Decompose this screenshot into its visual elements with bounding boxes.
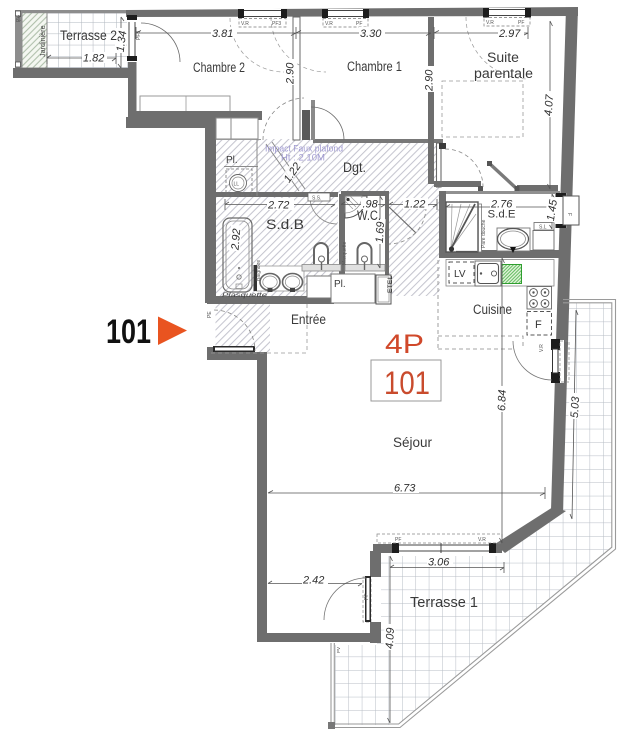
svg-text:1.69: 1.69 xyxy=(374,221,387,243)
svg-text:parentale: parentale xyxy=(474,66,533,81)
svg-text:1.82: 1.82 xyxy=(83,53,104,65)
svg-text:Masquette: Masquette xyxy=(342,241,348,265)
svg-text:2.90: 2.90 xyxy=(424,69,436,92)
svg-text:PV: PV xyxy=(16,15,22,22)
svg-text:S.d.E: S.d.E xyxy=(488,209,516,221)
svg-text:3.30: 3.30 xyxy=(360,28,382,40)
svg-text:LL: LL xyxy=(234,182,240,188)
svg-text:2.72: 2.72 xyxy=(267,200,289,212)
svg-text:4.07: 4.07 xyxy=(543,93,557,116)
svg-text:Baignoire: Baignoire xyxy=(256,260,262,281)
svg-text:V.R: V.R xyxy=(325,21,333,27)
svg-text:Cuisine: Cuisine xyxy=(473,302,512,317)
svg-text:PF3: PF3 xyxy=(136,31,142,40)
svg-text:6.84: 6.84 xyxy=(496,389,509,411)
svg-text:PF: PF xyxy=(395,537,401,543)
svg-text:PV: PV xyxy=(336,647,341,653)
svg-text:PF: PF xyxy=(518,20,524,26)
svg-text:101: 101 xyxy=(106,313,151,351)
svg-text:F: F xyxy=(566,213,572,216)
svg-text:Plasquette: Plasquette xyxy=(222,292,267,299)
svg-text:Séjour: Séjour xyxy=(393,435,432,450)
svg-text:Pl.: Pl. xyxy=(334,279,346,290)
svg-text:6.73: 6.73 xyxy=(394,483,416,495)
svg-text:Jardinière: Jardinière xyxy=(38,25,47,57)
svg-text:S.d.B: S.d.B xyxy=(266,216,304,232)
svg-text:Pare douche: Pare douche xyxy=(481,219,487,248)
svg-text:2.97: 2.97 xyxy=(498,28,521,40)
svg-text:V.R: V.R xyxy=(478,537,486,543)
svg-text:PE: PE xyxy=(207,311,213,318)
svg-text:PF: PF xyxy=(356,21,362,27)
svg-text:PF3: PF3 xyxy=(272,21,281,27)
svg-text:Entrée: Entrée xyxy=(291,312,326,327)
svg-text:1.22: 1.22 xyxy=(404,199,425,211)
svg-text:2.42: 2.42 xyxy=(302,575,324,587)
svg-text:Ht : 2.10M: Ht : 2.10M xyxy=(281,153,325,163)
svg-text:V.R: V.R xyxy=(539,344,545,352)
svg-text:3.06: 3.06 xyxy=(428,557,450,569)
svg-text:S.S.: S.S. xyxy=(312,196,321,202)
svg-text:4P: 4P xyxy=(385,329,424,359)
svg-text:LV: LV xyxy=(454,269,466,280)
svg-text:Chambre 2: Chambre 2 xyxy=(193,60,245,75)
svg-text:PF: PF xyxy=(364,594,370,600)
svg-text:Pl.: Pl. xyxy=(226,155,238,166)
svg-text:Dgt.: Dgt. xyxy=(343,160,366,175)
svg-text:S.L: S.L xyxy=(539,225,547,231)
svg-text:V.R: V.R xyxy=(241,21,249,27)
svg-text:Terrasse 1: Terrasse 1 xyxy=(410,595,478,611)
svg-text:2.92: 2.92 xyxy=(229,228,243,251)
svg-text:3.81: 3.81 xyxy=(212,28,233,40)
svg-text:2.90: 2.90 xyxy=(285,62,297,85)
svg-text:Chambre 1: Chambre 1 xyxy=(347,59,402,74)
svg-text:V.R: V.R xyxy=(486,20,494,26)
svg-text:101: 101 xyxy=(384,365,430,401)
svg-text:4.09: 4.09 xyxy=(384,627,397,649)
svg-text:W.C.: W.C. xyxy=(357,208,381,223)
svg-text:Terrasse 2: Terrasse 2 xyxy=(60,28,117,43)
svg-text:F: F xyxy=(535,319,542,331)
svg-text:ETEL: ETEL xyxy=(387,275,394,293)
svg-text:5.03: 5.03 xyxy=(569,395,582,418)
svg-text:Suite: Suite xyxy=(487,50,519,65)
